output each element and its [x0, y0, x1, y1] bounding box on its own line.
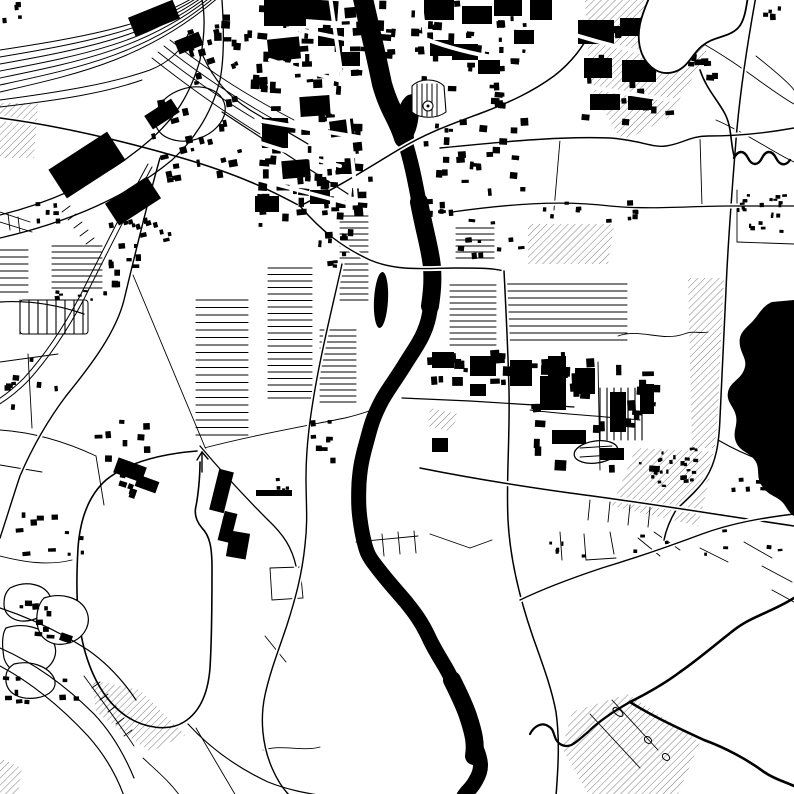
- city-map-svg: [0, 0, 794, 794]
- map-poster: [0, 0, 794, 794]
